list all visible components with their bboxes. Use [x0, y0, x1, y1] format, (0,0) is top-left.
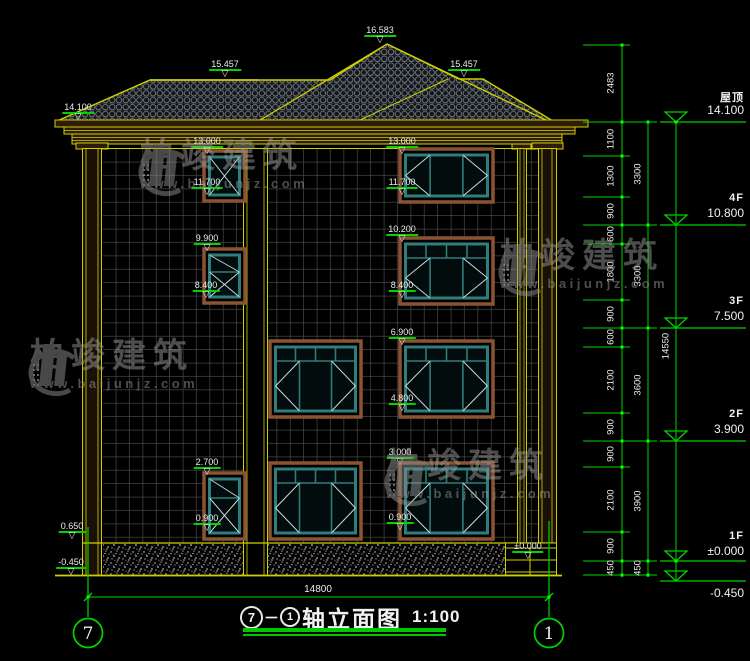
floor-elev-3f: 7.500: [656, 309, 744, 323]
triangle-marker-icon: ▽: [387, 458, 414, 465]
dimension-label: 1800: [606, 261, 617, 282]
floor-elev-roof: 14.100: [656, 103, 744, 117]
window: [400, 463, 493, 539]
triangle-marker-icon: ▽: [192, 188, 223, 195]
triangle-marker-icon: ▽: [386, 147, 418, 154]
elevation-marker: 8.400▽: [389, 281, 416, 298]
elevation-marker: 10.200▽: [386, 225, 418, 242]
floor-label-3f: 3F: [656, 295, 744, 307]
title-axis-from: 7: [240, 606, 263, 629]
floor-elev-2f: 3.900: [656, 422, 744, 436]
dimension-label: 900: [606, 306, 617, 322]
window: [270, 463, 361, 539]
dimension-label: 450: [606, 560, 617, 576]
triangle-marker-icon: ▽: [389, 338, 416, 345]
elevation-marker: 11.700▽: [387, 178, 418, 195]
dimension-label: 450: [633, 560, 644, 576]
title-axis-to: 1: [280, 607, 300, 627]
dimension-label: 900: [606, 446, 617, 462]
dimension-label: 3600: [633, 374, 644, 395]
elevation-marker: 4.800▽: [389, 394, 416, 411]
dimension-label: 2100: [606, 489, 617, 510]
axis-bubble: 1: [544, 624, 555, 644]
title-underline-thick: [243, 628, 446, 632]
triangle-marker-icon: ▽: [194, 524, 221, 531]
elevation-marker: 0.650▽: [59, 522, 86, 539]
dimension-label: 2100: [606, 369, 617, 390]
title-underline-thin: [243, 634, 446, 636]
dimension-label: 3300: [633, 265, 644, 286]
triangle-marker-icon: ▽: [512, 552, 543, 559]
dimension-label: 1300: [606, 165, 617, 186]
elevation-marker: 13.000▽: [386, 137, 418, 154]
triangle-marker-icon: ▽: [389, 404, 416, 411]
floor-label-4f: 4F: [656, 192, 744, 204]
pilaster-right-outer: [538, 149, 557, 543]
dimension-label: 14550: [661, 333, 672, 359]
elevation-marker: 0.900▽: [194, 514, 221, 531]
eave-cornice: [55, 120, 588, 144]
dimension-label: 3900: [633, 490, 644, 511]
dimension-label: 900: [606, 203, 617, 219]
foundation: [55, 543, 562, 576]
dimension-label: 600: [606, 329, 617, 345]
elevation-marker: 6.900▽: [389, 328, 416, 345]
window: [270, 341, 361, 417]
floor-label-1f: 1F: [656, 530, 744, 542]
triangle-marker-icon: ▽: [386, 235, 418, 242]
dimension-label: 2483: [606, 72, 617, 93]
elevation-marker: 0.900▽: [387, 513, 414, 530]
elevation-marker: 3.000▽: [387, 448, 414, 465]
roof: [57, 44, 553, 122]
dimension-label: 3300: [633, 163, 644, 184]
dimension-label: 900: [606, 419, 617, 435]
pilaster-right-inner: [517, 149, 527, 543]
triangle-marker-icon: ▽: [59, 532, 86, 539]
triangle-marker-icon: ▽: [194, 468, 221, 475]
elevation-marker: 9.900▽: [194, 234, 221, 251]
title-dash: －: [264, 607, 279, 628]
dimension-label: 14800: [304, 584, 332, 595]
triangle-marker-icon: ▽: [62, 113, 94, 120]
floor-label-2f: 2F: [656, 408, 744, 420]
cad-canvas: 71 16.583▽15.457▽15.457▽14.100▽13.000▽11…: [0, 0, 750, 661]
dimension-label: 600: [606, 226, 617, 242]
floor-elev-minus: -0.450: [656, 586, 744, 600]
elevation-marker: 15.457▽: [448, 60, 480, 77]
triangle-marker-icon: ▽: [194, 244, 221, 251]
elevation-marker: 13.000▽: [191, 137, 223, 154]
elevation-marker: 14.100▽: [62, 103, 94, 120]
pilaster-left: [82, 149, 102, 575]
elevation-marker: 11.700▽: [192, 178, 223, 195]
elevation-marker: 16.583▽: [364, 26, 396, 43]
elevation-marker: -0.450▽: [56, 558, 86, 575]
elevation-marker: 15.457▽: [209, 60, 241, 77]
triangle-marker-icon: ▽: [193, 291, 220, 298]
triangle-marker-icon: ▽: [364, 36, 396, 43]
floor-elev-4f: 10.800: [656, 206, 744, 220]
triangle-marker-icon: ▽: [191, 147, 223, 154]
triangle-marker-icon: ▽: [448, 70, 480, 77]
dimension-label: 1100: [606, 129, 617, 149]
elevation-marker: 2.700▽: [194, 458, 221, 475]
triangle-marker-icon: ▽: [209, 70, 241, 77]
triangle-marker-icon: ▽: [56, 568, 86, 575]
title-scale: 1:100: [412, 607, 460, 627]
triangle-marker-icon: ▽: [387, 188, 418, 195]
triangle-marker-icon: ▽: [389, 291, 416, 298]
floor-elev-1f: ±0.000: [656, 544, 744, 558]
dimension-label: 900: [606, 538, 617, 554]
elevation-marker: ±0.000▽: [512, 542, 543, 559]
elevation-marker: 8.400▽: [193, 281, 220, 298]
axis-bubble: 7: [83, 624, 94, 644]
triangle-marker-icon: ▽: [387, 523, 414, 530]
